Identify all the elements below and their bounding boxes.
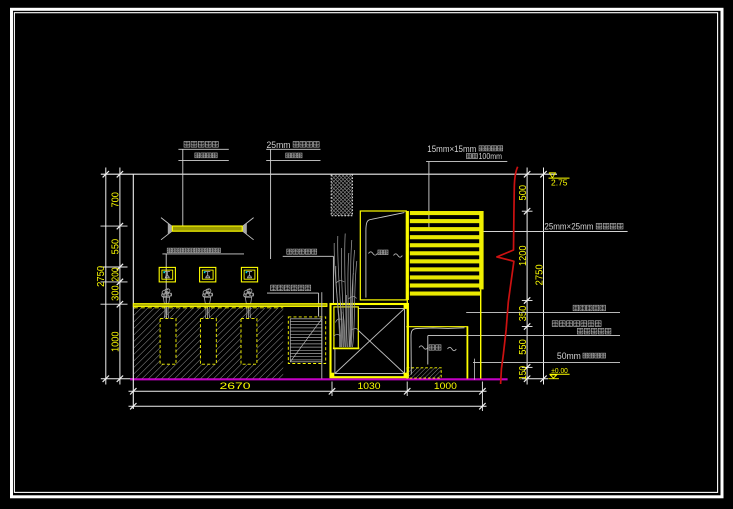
svg-text:350: 350 xyxy=(518,305,529,321)
svg-text:25mm×25mm: 25mm×25mm xyxy=(544,222,593,232)
svg-text:2670: 2670 xyxy=(220,380,251,391)
svg-text:300: 300 xyxy=(110,285,121,301)
svg-text:50mm: 50mm xyxy=(557,351,581,361)
svg-text:550: 550 xyxy=(518,339,529,355)
svg-text:2.75: 2.75 xyxy=(551,179,568,188)
svg-text:500: 500 xyxy=(518,185,529,201)
svg-text:100mm: 100mm xyxy=(479,152,503,161)
svg-text:2750: 2750 xyxy=(96,265,107,286)
svg-text:1200: 1200 xyxy=(518,245,529,266)
svg-text:700: 700 xyxy=(110,192,121,208)
svg-text:1000: 1000 xyxy=(434,380,457,391)
svg-text:2750: 2750 xyxy=(535,264,546,285)
svg-text:25mm: 25mm xyxy=(267,140,291,150)
svg-text:1030: 1030 xyxy=(358,380,381,391)
svg-text:15mm×15mm: 15mm×15mm xyxy=(427,144,476,154)
svg-text:150: 150 xyxy=(518,366,529,380)
svg-text:1000: 1000 xyxy=(110,331,121,352)
svg-text:550: 550 xyxy=(110,238,121,254)
svg-text:200: 200 xyxy=(110,267,121,281)
